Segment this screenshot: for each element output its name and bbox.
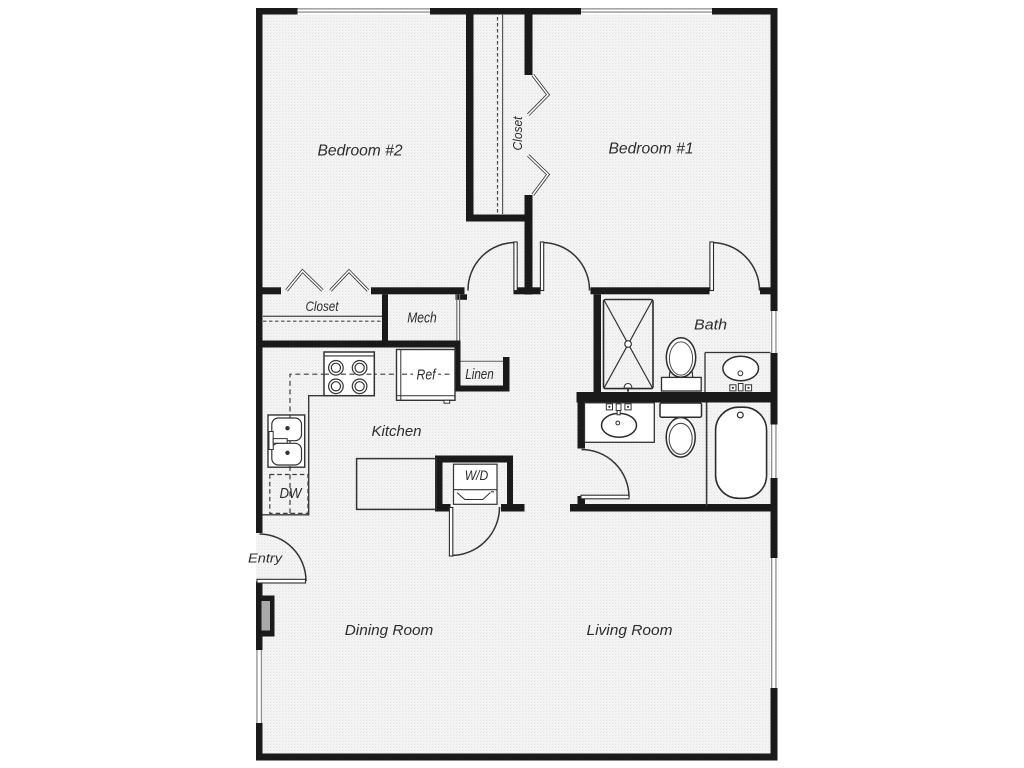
svg-text:Dining Room: Dining Room (345, 622, 434, 639)
svg-text:Bedroom #2: Bedroom #2 (318, 143, 403, 160)
svg-text:Living Room: Living Room (587, 622, 673, 639)
svg-text:Closet: Closet (510, 115, 525, 150)
svg-text:Linen: Linen (465, 366, 494, 383)
svg-text:Entry: Entry (248, 551, 284, 566)
svg-text:Kitchen: Kitchen (372, 423, 422, 440)
svg-text:Closet: Closet (306, 298, 340, 314)
svg-text:W/D: W/D (465, 467, 489, 483)
svg-text:Mech: Mech (407, 310, 437, 327)
svg-text:Bath: Bath (694, 317, 727, 333)
svg-text:Bedroom #1: Bedroom #1 (609, 141, 694, 158)
svg-text:Ref: Ref (417, 367, 437, 384)
svg-text:DW: DW (280, 486, 303, 502)
